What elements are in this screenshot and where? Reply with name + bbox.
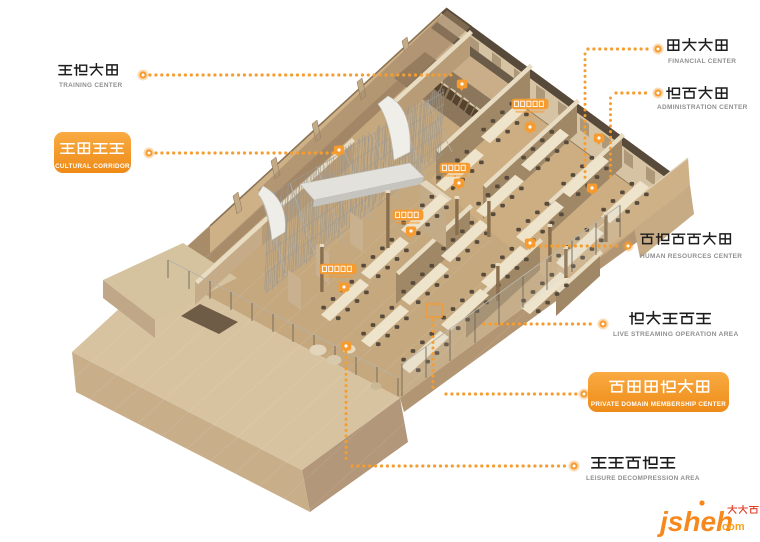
- svg-text:TRAINING CENTER: TRAINING CENTER: [59, 82, 123, 89]
- svg-text:FINANCIAL CENTER: FINANCIAL CENTER: [668, 58, 736, 65]
- svg-text:ADMINISTRATION CENTER: ADMINISTRATION CENTER: [657, 104, 748, 111]
- svg-text:HUMAN RESOURCES CENTER: HUMAN RESOURCES CENTER: [640, 253, 742, 260]
- svg-text:PRIVATE DOMAIN MEMBERSHIP CENT: PRIVATE DOMAIN MEMBERSHIP CENTER: [591, 401, 726, 408]
- svg-text:.com: .com: [719, 521, 745, 533]
- svg-text:CULTURAL CORRIDOR: CULTURAL CORRIDOR: [55, 163, 130, 170]
- svg-text:LIVE STREAMING OPERATION AREA: LIVE STREAMING OPERATION AREA: [613, 331, 739, 338]
- svg-text:LEISURE DECOMPRESSION AREA: LEISURE DECOMPRESSION AREA: [586, 475, 700, 482]
